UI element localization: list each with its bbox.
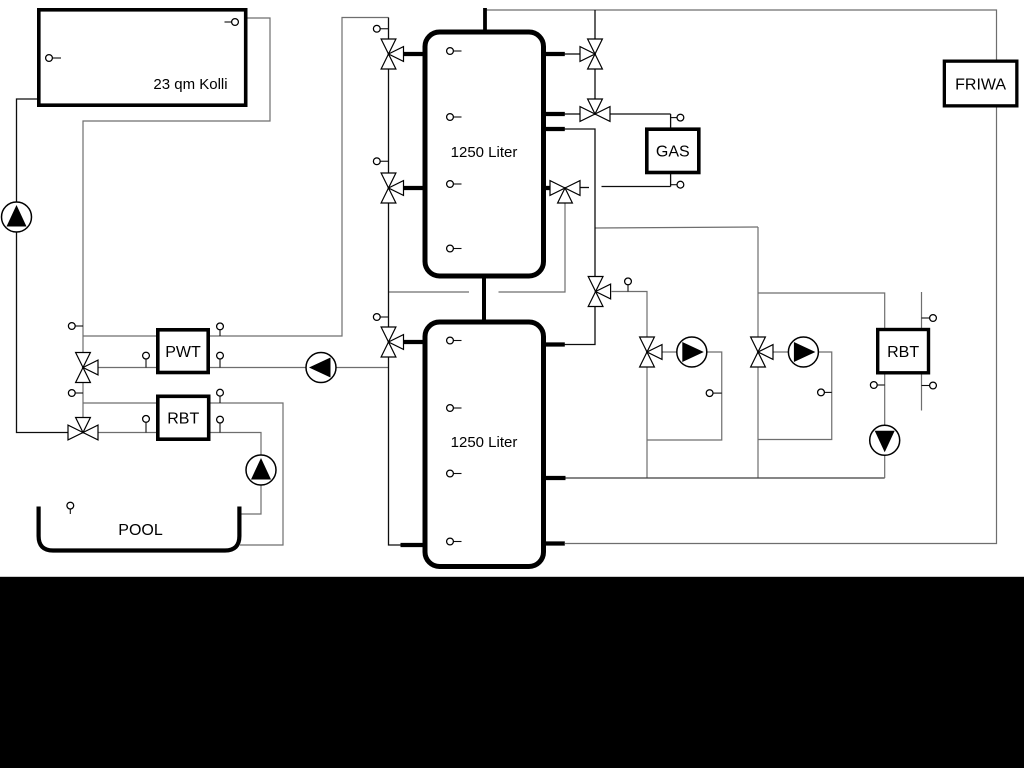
svg-text:23 qm Kolli: 23 qm Kolli xyxy=(153,76,227,93)
svg-text:GAS: GAS xyxy=(656,144,690,161)
svg-text:RBT: RBT xyxy=(167,411,199,428)
svg-text:RBT: RBT xyxy=(887,344,919,361)
svg-text:FRIWA: FRIWA xyxy=(955,76,1006,93)
svg-text:1250 Liter: 1250 Liter xyxy=(451,434,518,451)
svg-text:POOL: POOL xyxy=(118,522,163,539)
svg-text:1250 Liter: 1250 Liter xyxy=(451,144,518,161)
svg-text:PWT: PWT xyxy=(165,344,201,361)
